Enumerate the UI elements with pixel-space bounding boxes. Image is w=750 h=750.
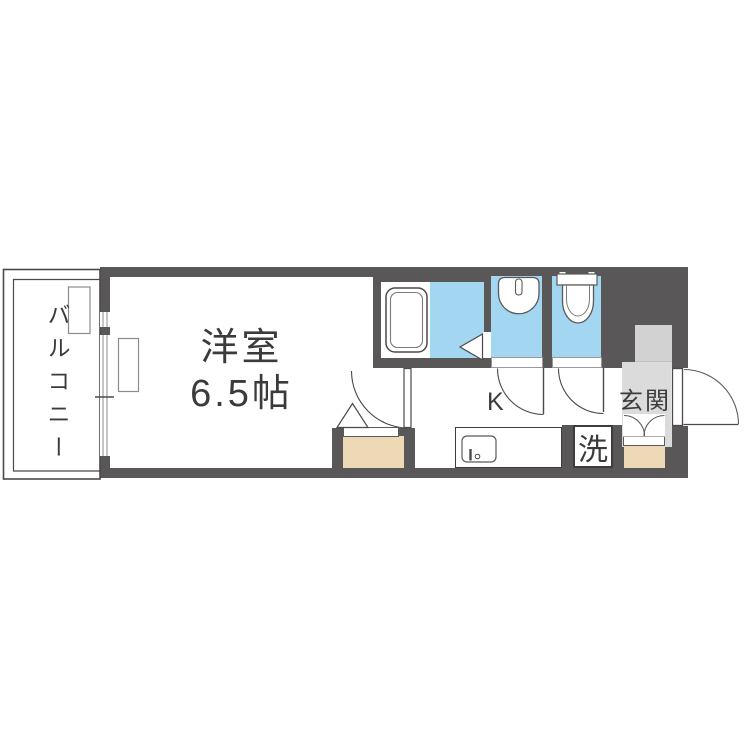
- kitchen-sink-icon: [462, 436, 496, 462]
- room-size: 6.5帖: [110, 372, 373, 418]
- toilet-door-swing: [559, 368, 604, 414]
- wash-basin-icon: [499, 278, 540, 314]
- room-name: 洋室: [110, 326, 373, 372]
- bathtub-icon: [386, 288, 427, 352]
- toilet-icon: [557, 272, 597, 324]
- washroom-door-swing: [498, 368, 544, 415]
- western-room-label: 洋室 6.5帖: [110, 326, 373, 417]
- shoe-cabinet-doors: [623, 414, 665, 437]
- bath-door-icon: [460, 334, 483, 360]
- kitchen-label: K: [487, 388, 504, 417]
- balcony-label: バルコニー: [40, 303, 74, 468]
- floor-plan: 洗: [0, 0, 750, 750]
- entrance-door-swing: [671, 368, 739, 426]
- entrance-label: 玄関: [614, 381, 676, 416]
